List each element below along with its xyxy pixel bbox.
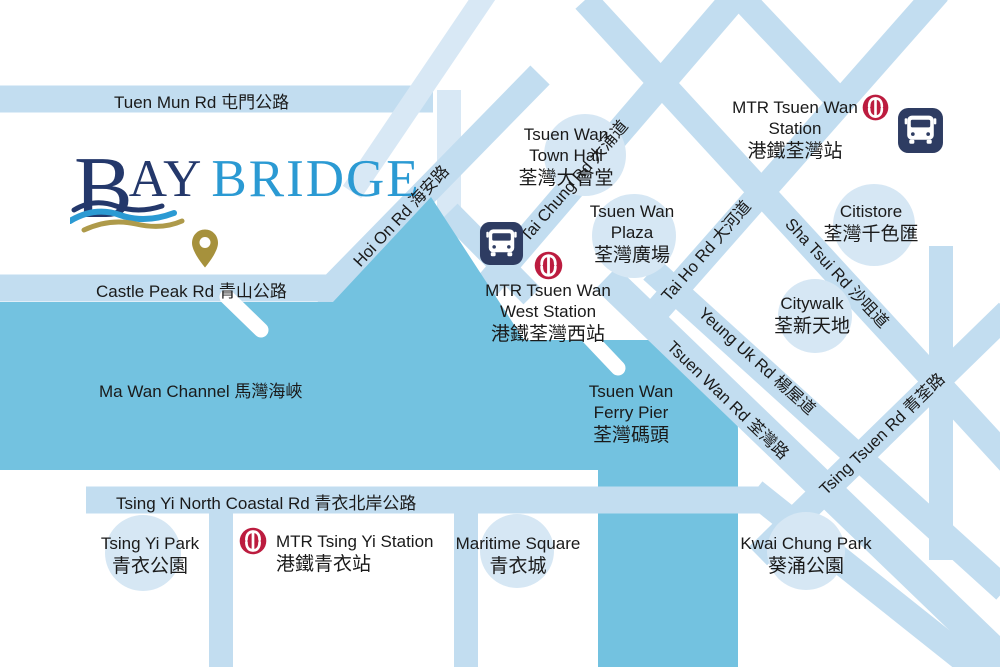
maritime-en: Maritime Square (456, 533, 581, 554)
mtr-icon-tsing-yi (239, 527, 267, 555)
place-label-ferry-pier: Tsuen Wan Ferry Pier 荃灣碼頭 (589, 381, 673, 448)
place-label-maritime-square: Maritime Square 青衣城 (456, 533, 581, 579)
plaza-zh: 荃灣廣場 (590, 243, 674, 268)
ferry-en2: Ferry Pier (589, 402, 673, 423)
citywalk-zh: 荃新天地 (774, 314, 850, 339)
place-label-citywalk: Citywalk 荃新天地 (774, 293, 850, 339)
tw-station-en1: MTR Tsuen Wan (732, 97, 858, 118)
plaza-en2: Plaza (590, 222, 674, 243)
location-pin-icon (190, 228, 220, 269)
tsing-yi-station-en: MTR Tsing Yi Station (276, 531, 433, 552)
station-label-tsing-yi: MTR Tsing Yi Station 港鐵青衣站 (276, 531, 433, 577)
tww-station-en1: MTR Tsuen Wan (485, 280, 611, 301)
bus-icon-tsuen-wan-west (479, 221, 524, 266)
place-label-plaza: Tsuen Wan Plaza 荃灣廣場 (590, 201, 674, 268)
town-hall-en2: Town Hall (518, 145, 613, 166)
town-hall-en1: Tsuen Wan (518, 124, 613, 145)
mtr-icon-tsuen-wan (862, 94, 889, 121)
road-label-coastal: Tsing Yi North Coastal Rd 青衣北岸公路 (116, 489, 416, 514)
tsing-yi-park-zh: 青衣公園 (101, 554, 199, 579)
citywalk-en: Citywalk (774, 293, 850, 314)
station-label-tsuen-wan-west: MTR Tsuen Wan West Station 港鐵荃灣西站 (485, 280, 611, 347)
place-label-citistore: Citistore 荃灣千色匯 (823, 201, 918, 247)
tww-station-zh: 港鐵荃灣西站 (485, 322, 611, 347)
kwai-chung-en: Kwai Chung Park (740, 533, 871, 554)
road-label-tuen-mun: Tuen Mun Rd 屯門公路 (114, 88, 289, 113)
road-label-castle-peak: Castle Peak Rd 青山公路 (96, 277, 287, 302)
town-hall-zh: 荃灣大會堂 (518, 166, 613, 191)
bus-icon-tsuen-wan (897, 107, 944, 154)
ferry-en1: Tsuen Wan (589, 381, 673, 402)
tw-station-en2: Station (732, 118, 858, 139)
citistore-en: Citistore (823, 201, 918, 222)
water-label-ma-wan: Ma Wan Channel 馬灣海峽 (99, 377, 302, 402)
tw-station-zh: 港鐵荃灣站 (732, 139, 858, 164)
citistore-zh: 荃灣千色匯 (823, 222, 918, 247)
plaza-en1: Tsuen Wan (590, 201, 674, 222)
place-label-tsing-yi-park: Tsing Yi Park 青衣公園 (101, 533, 199, 579)
tsing-yi-park-en: Tsing Yi Park (101, 533, 199, 554)
station-label-tsuen-wan: MTR Tsuen Wan Station 港鐵荃灣站 (732, 97, 858, 164)
maritime-zh: 青衣城 (456, 554, 581, 579)
bay-bridge-logo: BAYBRIDGE (74, 156, 421, 222)
ferry-zh: 荃灣碼頭 (589, 423, 673, 448)
logo-word2: BRIDGE (211, 156, 420, 202)
road-v-left (736, 0, 841, 103)
tww-station-en2: West Station (485, 301, 611, 322)
mtr-icon-tsuen-wan-west (534, 251, 563, 280)
place-label-kwai-chung-park: Kwai Chung Park 葵涌公園 (740, 533, 871, 579)
kwai-chung-zh: 葵涌公園 (740, 554, 871, 579)
tsing-yi-station-zh: 港鐵青衣站 (276, 552, 433, 577)
place-label-town-hall: Tsuen Wan Town Hall 荃灣大會堂 (518, 124, 613, 191)
location-map: BAYBRIDGE Tuen Mun Rd 屯門公路 Castle Peak R… (0, 0, 1000, 667)
